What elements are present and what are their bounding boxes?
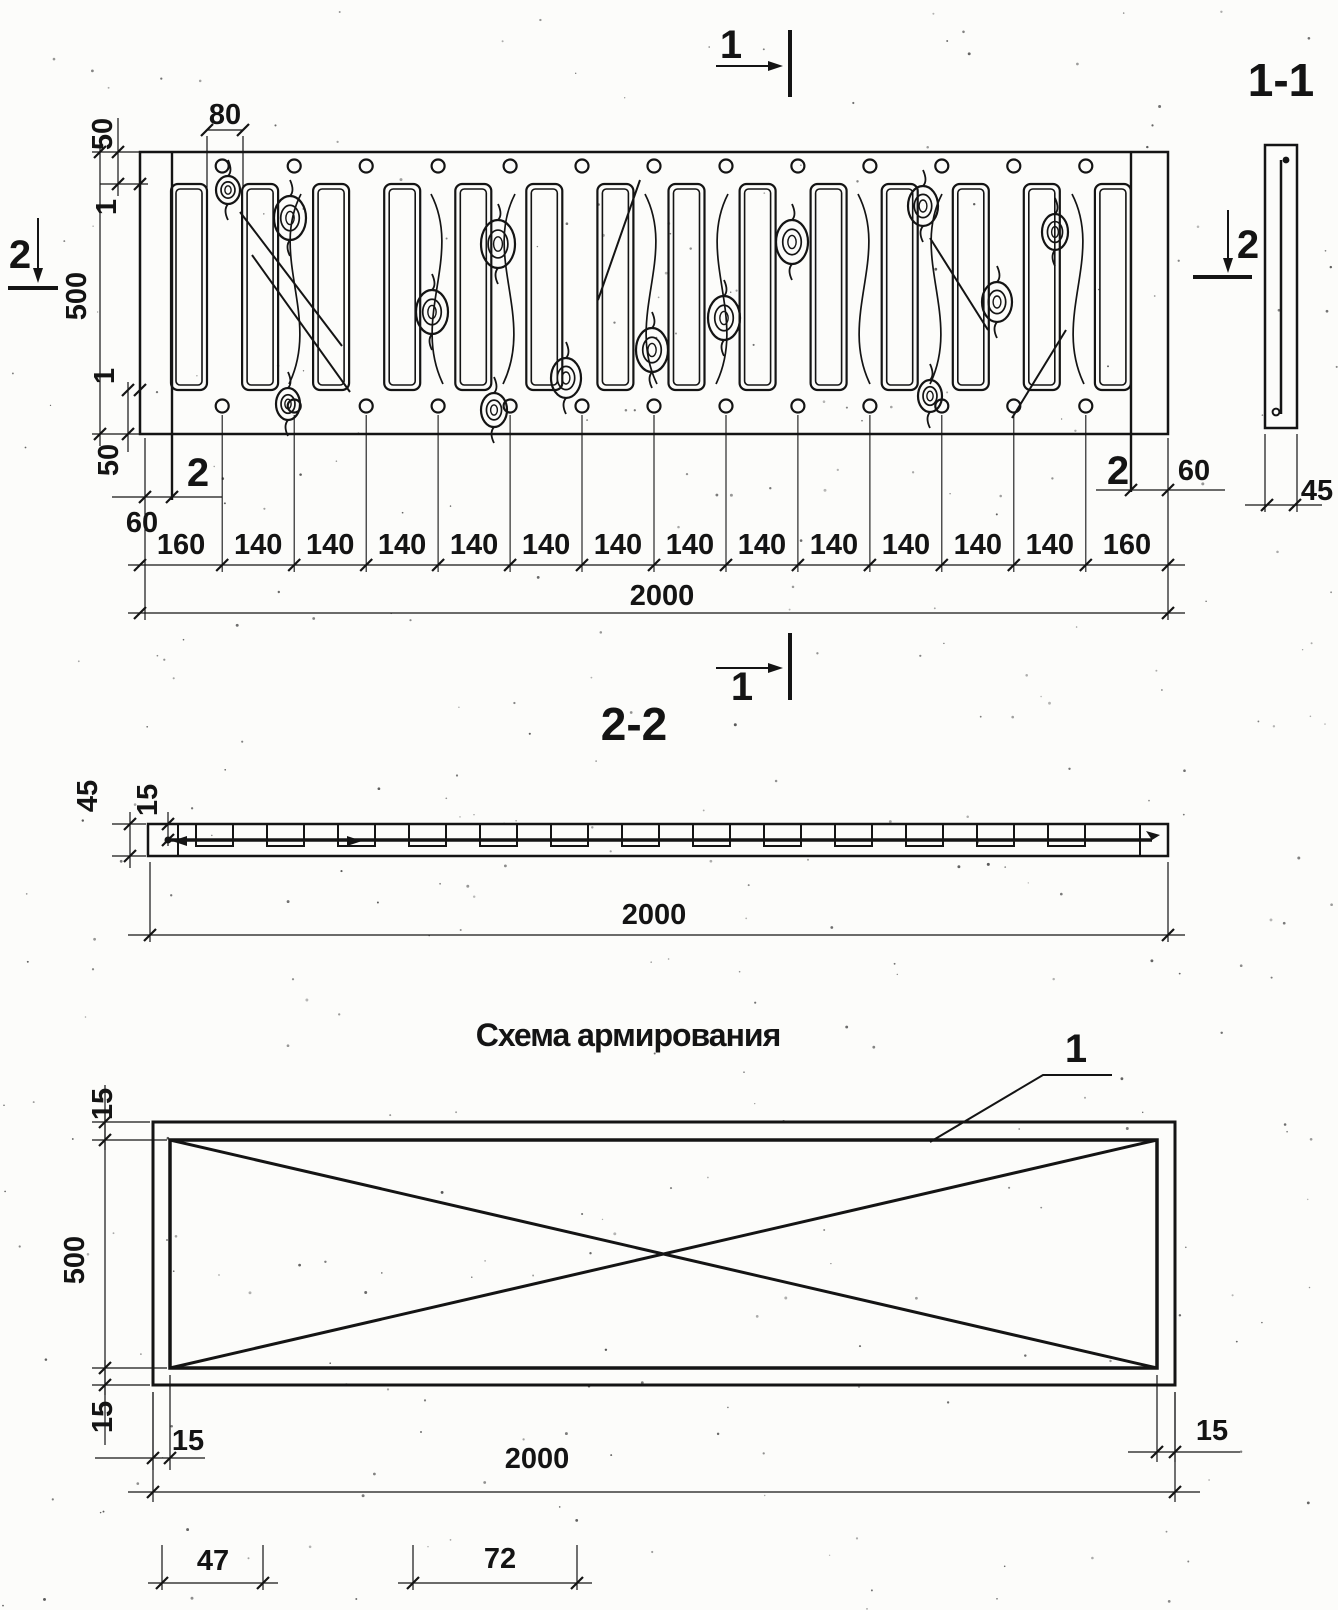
paper-speck <box>1197 225 1200 228</box>
paper-speck <box>336 460 338 462</box>
dim-15-scheme-top: 15 <box>87 1088 119 1120</box>
section-arrowhead <box>768 663 783 673</box>
chain-dim-label: 140 <box>522 529 570 561</box>
paper-speck <box>355 1598 357 1600</box>
paper-speck <box>537 246 538 247</box>
paper-speck <box>686 473 688 475</box>
nail-hole-top <box>432 160 445 173</box>
paper-speck <box>19 1245 21 1247</box>
paper-speck <box>1142 1112 1143 1113</box>
paper-speck <box>1074 430 1076 432</box>
slot-inner <box>460 189 486 385</box>
paper-speck <box>1310 1138 1313 1141</box>
dim-2000-plan: 2000 <box>630 580 695 612</box>
dim-15-scheme-bottom: 15 <box>87 1401 119 1433</box>
slat-notch <box>1048 824 1085 846</box>
paper-speck <box>634 409 636 411</box>
chain-dim-label: 140 <box>306 529 354 561</box>
nail-hole-bottom <box>216 400 229 413</box>
paper-speck <box>575 73 576 74</box>
paper-speck <box>670 233 672 235</box>
paper-speck <box>441 1191 444 1194</box>
slot-inner <box>176 189 202 385</box>
paper-speck <box>427 1546 429 1548</box>
paper-speck <box>1091 1557 1094 1560</box>
nail-hole-top <box>863 160 876 173</box>
wood-knot-core <box>225 186 231 194</box>
paper-speck <box>1330 903 1333 906</box>
wood-knot-tail <box>997 266 1000 282</box>
paper-speck <box>445 797 447 799</box>
wood-knot-tail <box>792 204 795 220</box>
paper-speck <box>830 926 833 929</box>
wood-knot-tail <box>498 204 501 220</box>
nail-hole-bottom <box>791 400 804 413</box>
paper-speck <box>504 864 507 867</box>
dim-50-bottom: 50 <box>93 444 125 476</box>
section-1-marker-top-label: 1 <box>720 23 742 67</box>
paper-speck <box>1325 250 1327 252</box>
paper-speck <box>458 707 460 709</box>
paper-speck <box>72 1138 74 1140</box>
paper-speck <box>968 52 971 55</box>
paper-speck <box>539 19 541 21</box>
section-1-marker-bottom-label: 1 <box>731 665 753 709</box>
dim-15-scheme-right: 15 <box>1196 1415 1228 1447</box>
paper-speck <box>26 893 28 895</box>
paper-speck <box>1185 1246 1187 1248</box>
paper-speck <box>278 591 280 593</box>
wood-grain-line <box>930 194 942 384</box>
paper-speck <box>82 819 84 821</box>
paper-speck <box>450 505 451 506</box>
paper-speck <box>1232 1294 1234 1296</box>
paper-speck <box>1123 12 1124 13</box>
paper-speck <box>710 860 713 863</box>
paper-speck <box>420 1431 422 1433</box>
wood-knot <box>551 358 581 398</box>
paper-speck <box>1048 702 1051 705</box>
wood-knot-core <box>993 296 1001 308</box>
paper-speck <box>807 859 809 861</box>
paper-speck <box>1107 365 1109 367</box>
paper-speck <box>299 473 302 476</box>
paper-speck <box>92 226 93 227</box>
paper-speck <box>1183 769 1186 772</box>
bar-pos-2-left-label: 2 <box>187 451 209 495</box>
slot-inner <box>887 189 913 385</box>
paper-speck <box>173 677 175 679</box>
paper-speck <box>1220 11 1222 13</box>
paper-speck <box>670 1187 672 1189</box>
paper-speck <box>473 895 475 897</box>
paper-speck <box>856 180 858 182</box>
paper-speck <box>966 815 969 818</box>
paper-speck <box>996 1598 998 1600</box>
chain-dim-label: 140 <box>234 529 282 561</box>
paper-speck <box>1270 918 1273 921</box>
paper-speck <box>1179 973 1181 975</box>
chain-dim-label: 140 <box>738 529 786 561</box>
wood-knot <box>918 380 942 412</box>
wood-grain-line <box>1072 194 1084 384</box>
wood-knot-tail <box>724 280 727 296</box>
reinforcement-scheme: Схема армирования 1 15 500 15 15 15 2000… <box>59 1017 1228 1577</box>
paper-speck <box>312 617 315 620</box>
paper-speck <box>962 31 965 34</box>
paper-speck <box>591 826 593 828</box>
paper-speck <box>224 502 226 504</box>
wood-knot-tail <box>494 377 497 393</box>
paper-speck <box>389 1114 391 1116</box>
paper-speck <box>224 769 226 771</box>
paper-speck <box>973 203 975 205</box>
paper-speck <box>730 291 731 292</box>
paper-speck <box>473 814 474 815</box>
paper-speck <box>1068 768 1070 770</box>
paper-speck <box>241 741 243 743</box>
paper-speck <box>912 471 914 473</box>
section-arrowhead <box>768 61 783 71</box>
paper-speck <box>613 321 615 323</box>
paper-speck <box>589 1252 591 1254</box>
paper-speck <box>1024 1354 1026 1356</box>
wood-grain-line <box>858 194 870 384</box>
paper-speck <box>1262 414 1264 416</box>
section-2-marker-left-label: 2 <box>9 233 31 277</box>
nail-hole-top <box>935 160 948 173</box>
paper-speck <box>689 247 691 249</box>
slat-notch <box>764 824 801 846</box>
plan-view: 1 1 2 2 80 50 1 500 1 50 2 60 2 60 16014… <box>9 23 1259 709</box>
paper-speck <box>248 1557 250 1559</box>
paper-speck <box>27 961 29 963</box>
dim-80: 80 <box>209 99 241 131</box>
paper-speck <box>743 1071 745 1073</box>
pos-1-leader-line <box>930 1075 1112 1142</box>
paper-speck <box>739 971 741 973</box>
paper-speck <box>947 1401 949 1403</box>
wood-knot-tail <box>923 170 926 186</box>
chain-dim-label: 140 <box>882 529 930 561</box>
paper-speck <box>483 1481 486 1484</box>
paper-speck <box>1158 105 1161 108</box>
paper-speck <box>402 512 404 514</box>
paper-speck <box>1040 1207 1042 1209</box>
paper-speck <box>605 1349 607 1351</box>
chain-dim-label: 140 <box>954 529 1002 561</box>
paper-speck <box>745 917 747 919</box>
nail-hole-bottom <box>648 400 661 413</box>
paper-speck <box>455 1111 457 1113</box>
chain-dim-label: 140 <box>378 529 426 561</box>
paper-speck <box>1205 601 1206 602</box>
paper-speck <box>196 375 197 376</box>
drawing-sheet: 1 1 2 2 80 50 1 500 1 50 2 60 2 60 16014… <box>0 0 1338 1610</box>
paper-speck <box>1183 814 1185 816</box>
wood-knot-tail <box>790 264 793 280</box>
paper-speck <box>400 178 403 181</box>
paper-speck <box>263 508 265 510</box>
paper-speck <box>1155 670 1157 672</box>
wood-knot-tail <box>226 204 229 220</box>
paper-speck <box>894 963 896 965</box>
wood-knot <box>216 176 240 204</box>
paper-speck <box>43 1598 46 1601</box>
wood-knot-ring <box>557 366 574 389</box>
paper-speck <box>792 586 795 589</box>
paper-speck <box>305 999 308 1002</box>
paper-speck <box>715 494 718 497</box>
paper-speck <box>613 1232 616 1235</box>
slat-notch <box>409 824 446 846</box>
paper-speck <box>1311 642 1313 644</box>
dim-500: 500 <box>61 272 93 320</box>
paper-speck <box>199 80 202 83</box>
paper-speck <box>775 780 778 783</box>
paper-speck <box>120 860 123 863</box>
section-arrowhead <box>33 268 43 283</box>
dim-15-scheme-left: 15 <box>172 1425 204 1457</box>
paper-speck <box>658 297 660 299</box>
paper-speck <box>1076 63 1079 66</box>
paper-speck <box>409 619 411 621</box>
paper-speck <box>175 1235 178 1238</box>
dim-47: 47 <box>197 1545 229 1577</box>
paper-speck <box>707 1177 709 1179</box>
paper-speck <box>85 1016 87 1018</box>
dim-45-s22: 45 <box>72 780 104 812</box>
paper-speck <box>1011 716 1014 719</box>
dim-50-top: 50 <box>87 118 119 150</box>
wood-knot-tail <box>928 412 931 428</box>
wood-knot <box>481 393 507 427</box>
paper-speck <box>1004 866 1006 868</box>
section-1-1-view: 1-1 45 <box>1248 54 1333 507</box>
paper-speck <box>800 539 803 542</box>
paper-speck <box>1061 418 1062 419</box>
wood-knot-ring <box>281 205 300 231</box>
nail-hole-bottom <box>720 400 733 413</box>
wood-knot-tail <box>290 180 293 196</box>
slat-notch <box>196 824 233 846</box>
paper-speck <box>166 1239 168 1241</box>
paper-speck <box>581 1213 583 1215</box>
paper-speck <box>1060 893 1063 896</box>
paper-speck <box>703 809 705 811</box>
paper-speck <box>1025 674 1028 677</box>
slat-notch <box>693 824 730 846</box>
chain-dim-label: 160 <box>157 529 205 561</box>
paper-speck <box>727 1407 729 1409</box>
wood-knot-tail <box>496 268 499 284</box>
wood-knot-ring <box>923 387 937 406</box>
paper-speck <box>170 894 172 896</box>
paper-speck <box>926 146 929 149</box>
paper-speck <box>93 938 96 941</box>
paper-speck <box>163 659 165 661</box>
paper-speck <box>1309 1287 1311 1289</box>
wood-knot-core <box>648 343 656 356</box>
dim-15-s22: 15 <box>132 784 164 816</box>
paper-speck <box>287 900 290 903</box>
paper-speck <box>91 70 94 73</box>
paper-speck <box>1109 1360 1111 1362</box>
paper-speck <box>856 1537 858 1539</box>
paper-speck <box>943 643 944 644</box>
paper-speck <box>763 192 765 194</box>
paper-speck <box>823 400 826 403</box>
section-arrowhead <box>347 836 362 846</box>
wood-knot-tail <box>650 372 653 388</box>
dim-1-bottom: 1 <box>89 368 121 384</box>
paper-speck <box>1187 1561 1189 1563</box>
paper-speck <box>897 974 898 975</box>
paper-speck <box>610 1454 612 1456</box>
paper-speck <box>103 1511 105 1513</box>
paper-speck <box>1028 882 1029 883</box>
paper-speck <box>336 141 338 143</box>
chain-dim-label: 140 <box>666 529 714 561</box>
paper-speck <box>764 1495 765 1496</box>
paper-speck <box>980 716 982 718</box>
paper-speck <box>339 11 341 13</box>
paper-speck <box>946 40 948 42</box>
paper-speck <box>1330 266 1332 268</box>
nail-hole-top <box>791 160 804 173</box>
slat-notch <box>835 824 872 846</box>
wood-knot-tail <box>566 342 569 358</box>
chain-dim-label: 140 <box>810 529 858 561</box>
paper-speck <box>1276 551 1279 554</box>
rebar-hook-top <box>1283 157 1290 164</box>
paper-speck <box>387 1388 389 1390</box>
paper-speck <box>460 929 462 931</box>
paper-speck <box>845 1026 848 1029</box>
dim-45-s11: 45 <box>1301 475 1333 507</box>
paper-speck <box>932 13 934 15</box>
slot-inner <box>389 189 415 385</box>
paper-speck <box>1302 649 1303 650</box>
wood-knot <box>776 220 808 264</box>
paper-speck <box>156 391 158 393</box>
paper-speck <box>484 1260 486 1262</box>
paper-speck <box>1052 978 1054 980</box>
paper-speck <box>3 1104 5 1106</box>
slot-inner <box>1100 189 1126 385</box>
paper-speck <box>287 1044 290 1047</box>
paper-speck <box>1236 1341 1238 1343</box>
slot-inner <box>674 189 700 385</box>
wood-knot-tail <box>432 274 435 290</box>
paper-speck <box>338 1013 340 1015</box>
section-1-1-title: 1-1 <box>1248 54 1314 106</box>
paper-speck <box>1146 146 1148 148</box>
dim-1-top: 1 <box>91 199 123 215</box>
paper-speck <box>532 1275 534 1277</box>
paper-speck <box>1178 260 1180 262</box>
nail-hole-top <box>360 160 373 173</box>
paper-speck <box>852 102 854 104</box>
paper-speck <box>575 1519 578 1522</box>
paper-speck <box>263 213 264 214</box>
wood-knot-ring <box>221 182 235 198</box>
paper-speck <box>1240 964 1243 967</box>
paper-speck <box>602 1219 603 1220</box>
paper-speck <box>377 902 379 904</box>
paper-speck <box>537 576 540 579</box>
paper-speck <box>871 1589 873 1591</box>
chain-dim-label: 140 <box>450 529 498 561</box>
paper-speck <box>1336 366 1338 368</box>
paper-speck <box>754 1002 756 1004</box>
nail-hole-top <box>288 160 301 173</box>
paper-speck <box>949 493 950 494</box>
paper-speck <box>769 487 771 489</box>
nail-hole-top <box>720 160 733 173</box>
section-arrowhead <box>1223 258 1233 273</box>
wood-knot-tail <box>652 312 655 328</box>
paper-speck <box>1240 1451 1242 1453</box>
paper-speck <box>1154 295 1156 297</box>
section-2-2-title: 2-2 <box>601 698 667 750</box>
paper-speck <box>1208 1479 1210 1481</box>
section-2-marker-right-label: 2 <box>1237 223 1259 267</box>
nail-hole-top <box>576 160 589 173</box>
paper-speck <box>1308 37 1311 40</box>
paper-speck <box>559 1506 561 1508</box>
slat-notch <box>551 824 588 846</box>
paper-speck <box>600 631 603 634</box>
paper-speck <box>730 494 733 497</box>
paper-speck <box>157 655 159 657</box>
nail-hole-top <box>648 160 661 173</box>
paper-speck <box>92 968 94 970</box>
paper-speck <box>1307 1199 1309 1201</box>
paper-speck <box>459 816 460 817</box>
paper-speck <box>830 1263 831 1264</box>
paper-speck <box>934 607 936 609</box>
slat-notch <box>267 824 304 846</box>
wood-knot-core <box>494 237 503 251</box>
slot-inner <box>602 189 628 385</box>
wood-knot <box>982 282 1012 322</box>
paper-speck <box>329 1362 331 1364</box>
paper-speck <box>362 1494 365 1497</box>
paper-speck <box>450 1539 452 1541</box>
nail-hole-bottom <box>1079 400 1092 413</box>
wood-knot-tail <box>995 322 998 338</box>
paper-speck <box>665 272 668 275</box>
dim-500-scheme: 500 <box>59 1236 91 1284</box>
paper-speck <box>446 237 448 239</box>
paper-speck <box>513 702 515 704</box>
paper-speck <box>373 1473 376 1476</box>
paper-speck <box>191 807 193 809</box>
paper-speck <box>529 733 531 735</box>
paper-speck <box>236 624 239 627</box>
paper-speck <box>846 407 848 409</box>
paper-speck <box>591 677 593 679</box>
dim-72: 72 <box>484 1543 516 1575</box>
pos-1-label: 1 <box>1065 1027 1087 1071</box>
paper-speck <box>1168 1600 1171 1603</box>
paper-speck <box>502 40 504 42</box>
paper-speck <box>274 124 276 126</box>
technical-drawing: 1 1 2 2 80 50 1 500 1 50 2 60 2 60 16014… <box>0 0 1338 1610</box>
chain-dim-label: 140 <box>594 529 642 561</box>
wood-grain-stroke <box>252 255 350 392</box>
